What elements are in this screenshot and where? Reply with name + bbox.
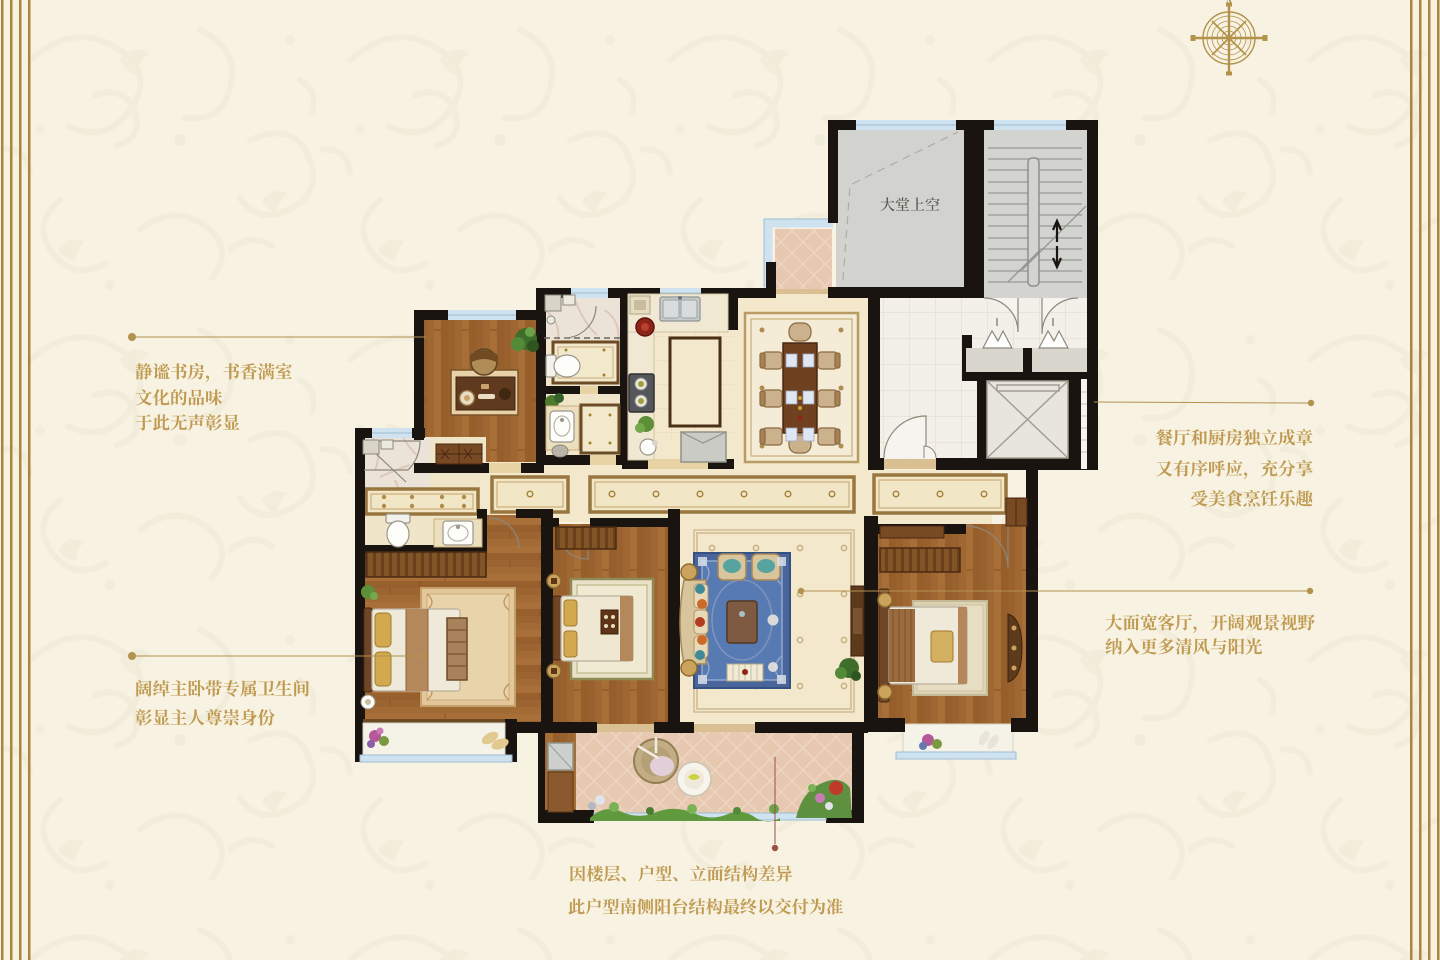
svg-text:N: N <box>1226 0 1232 5</box>
